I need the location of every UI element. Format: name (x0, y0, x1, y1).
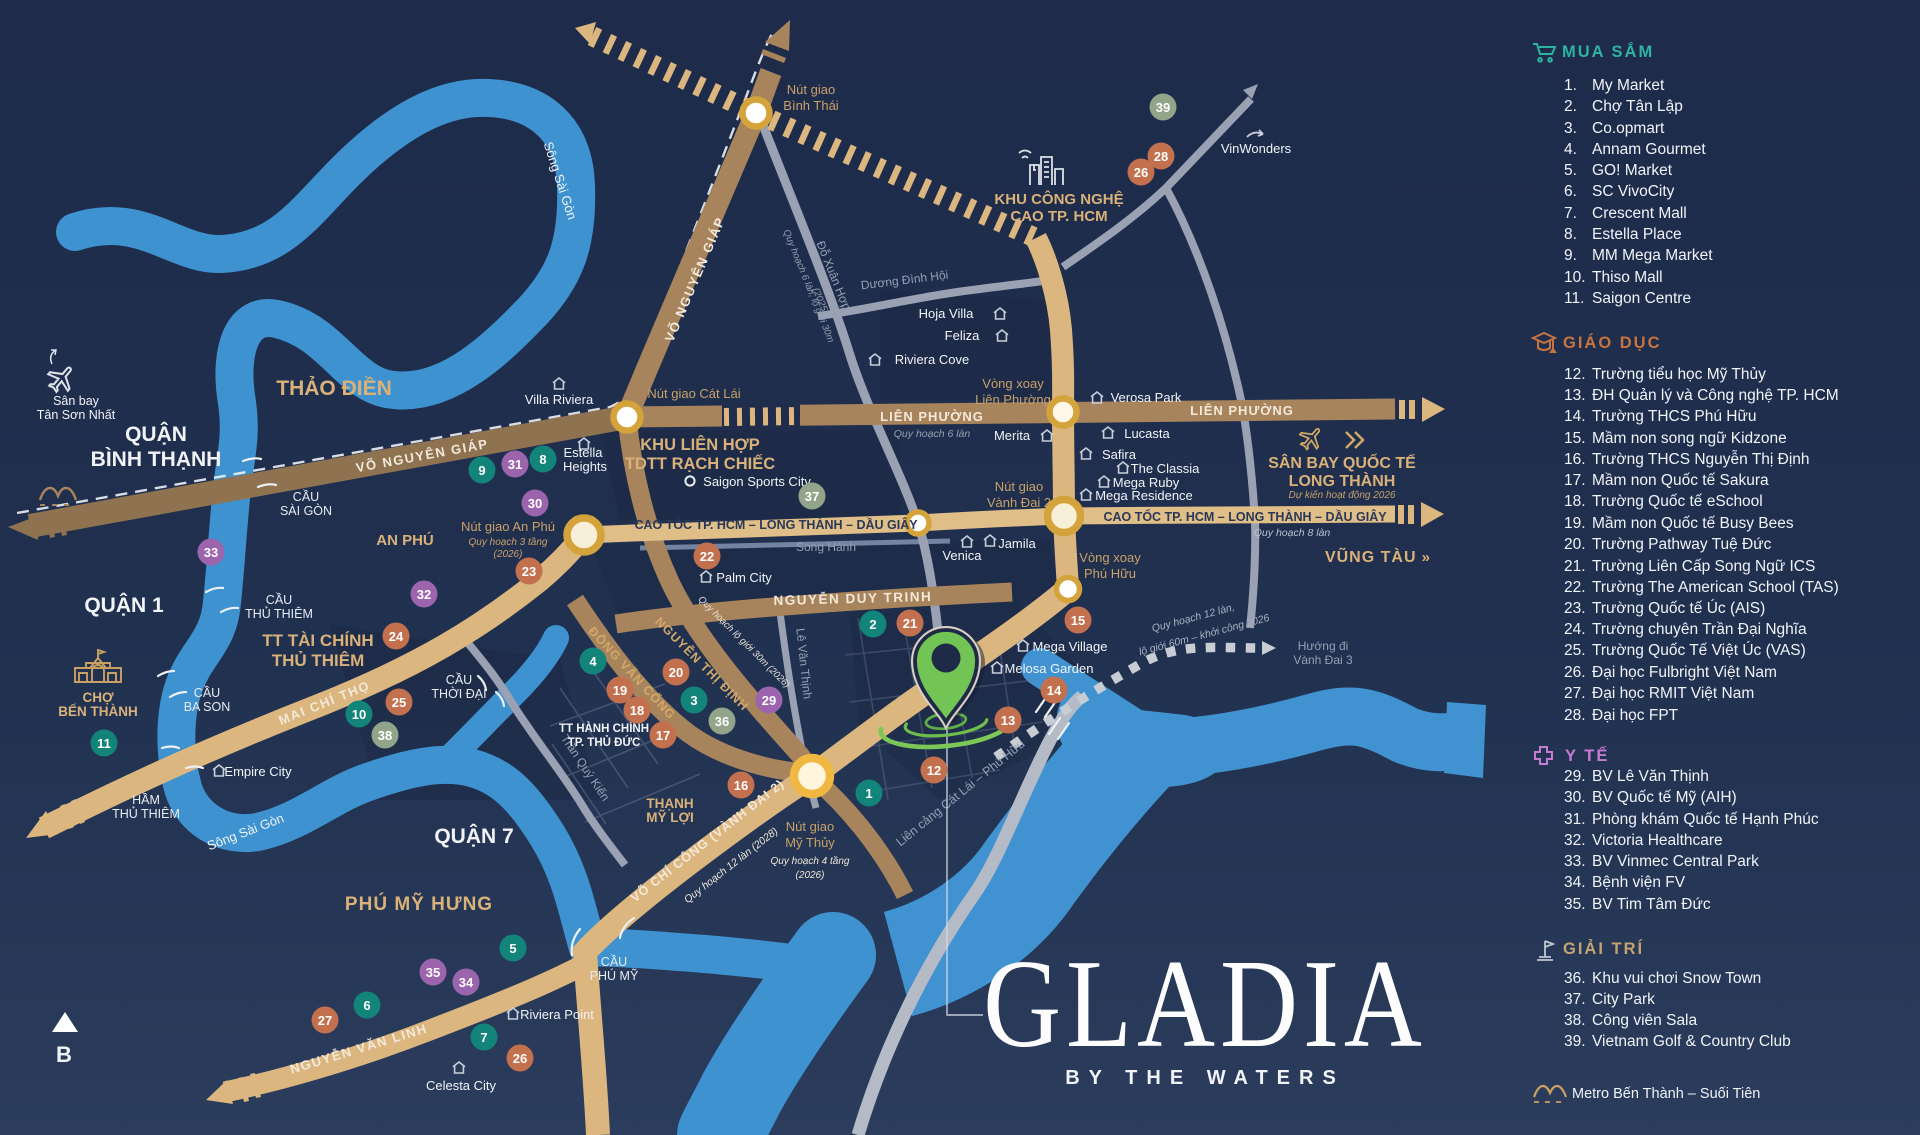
svg-text:Phú Hữu: Phú Hữu (1084, 566, 1136, 581)
svg-text:BẾN THÀNH: BẾN THÀNH (58, 704, 138, 719)
svg-text:SÂN BAY QUỐC TẾ: SÂN BAY QUỐC TẾ (1268, 452, 1416, 472)
svg-text:Trường THCS Phú Hữu: Trường THCS Phú Hữu (1592, 408, 1756, 425)
svg-text:28.: 28. (1564, 707, 1586, 724)
svg-text:Quy hoạch 6 làn: Quy hoạch 6 làn (894, 428, 971, 440)
svg-text:Melosa Garden: Melosa Garden (1005, 661, 1094, 676)
svg-text:Nút giao: Nút giao (995, 479, 1043, 494)
svg-text:6: 6 (363, 998, 370, 1013)
svg-text:CAO TP. HCM: CAO TP. HCM (1010, 208, 1107, 225)
svg-text:My Market: My Market (1592, 77, 1665, 94)
svg-text:10.: 10. (1564, 269, 1586, 286)
svg-text:Riviera Cove: Riviera Cove (895, 352, 969, 367)
svg-text:PHÚ MỸ: PHÚ MỸ (590, 968, 639, 983)
svg-text:22.: 22. (1564, 579, 1586, 596)
svg-text:Y TẾ: Y TẾ (1565, 746, 1609, 765)
svg-text:Đại học Fulbright Việt Nam: Đại học Fulbright Việt Nam (1592, 664, 1777, 681)
svg-text:23.: 23. (1564, 600, 1586, 617)
svg-text:MỸ LỢI: MỸ LỢI (646, 810, 694, 825)
svg-text:21: 21 (903, 616, 917, 631)
svg-text:Đại học RMIT Việt Nam: Đại học RMIT Việt Nam (1592, 685, 1754, 702)
svg-text:GO! Market: GO! Market (1592, 162, 1673, 179)
svg-text:3: 3 (690, 693, 697, 708)
svg-text:13: 13 (1001, 713, 1015, 728)
svg-text:City Park: City Park (1592, 991, 1655, 1008)
svg-text:19.: 19. (1564, 515, 1586, 532)
svg-text:TDTT RẠCH CHIẾC: TDTT RẠCH CHIẾC (625, 454, 775, 473)
svg-text:30: 30 (528, 496, 542, 511)
svg-text:Vòng xoay: Vòng xoay (1079, 550, 1141, 565)
svg-text:31: 31 (508, 457, 522, 472)
svg-text:CẦU: CẦU (601, 954, 627, 969)
svg-text:26.: 26. (1564, 664, 1586, 681)
svg-text:Vòng xoay: Vòng xoay (982, 376, 1044, 391)
svg-text:23: 23 (522, 564, 536, 579)
svg-text:Bệnh viện FV: Bệnh viện FV (1592, 874, 1686, 891)
svg-text:Celesta City: Celesta City (426, 1078, 497, 1093)
svg-text:3.: 3. (1564, 120, 1577, 137)
svg-text:Hướng đi: Hướng đi (1298, 639, 1349, 653)
svg-text:Chợ Tân Lập: Chợ Tân Lập (1592, 98, 1683, 115)
svg-text:18.: 18. (1564, 493, 1586, 510)
svg-text:SÀI GÒN: SÀI GÒN (280, 503, 332, 518)
svg-text:Dự kiến hoạt động 2026: Dự kiến hoạt động 2026 (1289, 489, 1396, 501)
svg-text:Saigon Centre: Saigon Centre (1592, 290, 1691, 307)
svg-text:CẦU: CẦU (293, 489, 319, 504)
svg-text:TT TÀI CHÍNH: TT TÀI CHÍNH (262, 631, 373, 650)
svg-text:17: 17 (656, 728, 670, 743)
svg-text:GIẢI TRÍ: GIẢI TRÍ (1563, 939, 1644, 958)
svg-text:Jamila: Jamila (998, 536, 1036, 551)
svg-text:CẦU: CẦU (446, 672, 472, 687)
svg-text:Trường Quốc tế Úc (AIS): Trường Quốc tế Úc (AIS) (1592, 600, 1765, 617)
svg-text:Annam Gourmet: Annam Gourmet (1592, 141, 1706, 158)
svg-text:Trường THCS Nguyễn Thị Định: Trường THCS Nguyễn Thị Định (1592, 451, 1810, 468)
svg-text:10: 10 (352, 707, 366, 722)
svg-text:LIÊN PHƯỜNG: LIÊN PHƯỜNG (1190, 403, 1294, 418)
svg-text:Mỹ Thủy: Mỹ Thủy (785, 835, 835, 850)
svg-text:Trường Liên Cấp Song Ngữ ICS: Trường Liên Cấp Song Ngữ ICS (1592, 558, 1815, 575)
svg-text:BÌNH THẠNH: BÌNH THẠNH (91, 448, 222, 471)
svg-text:12: 12 (927, 763, 941, 778)
svg-text:Công viên Sala: Công viên Sala (1592, 1012, 1698, 1029)
svg-text:33.: 33. (1564, 853, 1586, 870)
svg-text:29.: 29. (1564, 768, 1586, 785)
svg-text:17.: 17. (1564, 472, 1586, 489)
svg-text:Estella: Estella (563, 445, 603, 460)
svg-text:Crescent Mall: Crescent Mall (1592, 205, 1687, 222)
svg-text:30.: 30. (1564, 789, 1586, 806)
svg-text:Thiso Mall: Thiso Mall (1592, 269, 1663, 286)
svg-text:26: 26 (1134, 165, 1148, 180)
svg-text:Quy hoạch 8 làn: Quy hoạch 8 làn (1254, 527, 1331, 539)
svg-text:Heights: Heights (563, 459, 608, 474)
svg-text:BV Vinmec Central Park: BV Vinmec Central Park (1592, 853, 1759, 870)
svg-text:Saigon Sports City: Saigon Sports City (703, 474, 811, 489)
svg-text:THỦ THIÊM: THỦ THIÊM (272, 651, 365, 670)
svg-text:2.: 2. (1564, 98, 1577, 115)
svg-text:Quy hoạch 3 tầng: Quy hoạch 3 tầng (469, 536, 548, 548)
svg-text:GIÁO DỤC: GIÁO DỤC (1563, 333, 1662, 352)
svg-text:18: 18 (630, 703, 644, 718)
svg-text:1: 1 (865, 786, 872, 801)
svg-text:Feliza: Feliza (945, 328, 980, 343)
svg-text:THỜI ĐẠI: THỜI ĐẠI (431, 686, 486, 701)
svg-text:31.: 31. (1564, 811, 1586, 828)
svg-text:Tân Sơn Nhất: Tân Sơn Nhất (37, 408, 116, 422)
svg-text:Nút giao An Phú: Nút giao An Phú (461, 519, 555, 534)
svg-text:Phòng khám Quốc tế Hạnh Phúc: Phòng khám Quốc tế Hạnh Phúc (1592, 811, 1819, 828)
svg-text:Metro Bến Thành – Suối Tiên: Metro Bến Thành – Suối Tiên (1572, 1086, 1760, 1102)
svg-text:36: 36 (715, 714, 729, 729)
svg-text:11.: 11. (1564, 290, 1584, 307)
svg-text:2: 2 (869, 617, 876, 632)
svg-text:CHỢ: CHỢ (82, 690, 113, 705)
svg-text:5: 5 (509, 941, 516, 956)
svg-text:Mầm non song ngữ Kidzone: Mầm non song ngữ Kidzone (1592, 430, 1787, 447)
svg-text:QUẬN: QUẬN (125, 422, 187, 446)
svg-text:25.: 25. (1564, 642, 1586, 659)
svg-text:THẢO ĐIỀN: THẢO ĐIỀN (276, 377, 392, 400)
svg-text:Quy hoạch 4 tầng: Quy hoạch 4 tầng (771, 855, 850, 867)
svg-text:13.: 13. (1564, 387, 1586, 404)
svg-text:36.: 36. (1564, 970, 1586, 987)
svg-text:6.: 6. (1564, 183, 1577, 200)
svg-text:Song Hành: Song Hành (796, 540, 856, 554)
svg-text:KHU LIÊN HỢP: KHU LIÊN HỢP (640, 435, 760, 454)
svg-text:BV Quốc tế Mỹ (AIH): BV Quốc tế Mỹ (AIH) (1592, 789, 1737, 806)
svg-text:Khu vui chơi Snow Town: Khu vui chơi Snow Town (1592, 970, 1761, 987)
svg-text:(2026): (2026) (494, 549, 523, 560)
svg-text:B: B (56, 1042, 72, 1067)
svg-text:CAO TỐC TP. HCM – LONG THÀNH –: CAO TỐC TP. HCM – LONG THÀNH – DẦU GIÂY (634, 517, 918, 532)
svg-text:CẦU: CẦU (266, 592, 292, 607)
svg-text:Trường The American School (TA: Trường The American School (TAS) (1592, 579, 1839, 596)
svg-text:Empire City: Empire City (224, 764, 292, 779)
svg-text:Trường Pathway Tuệ Đức: Trường Pathway Tuệ Đức (1592, 536, 1772, 553)
svg-text:34.: 34. (1564, 874, 1586, 891)
svg-text:Co.opmart: Co.opmart (1592, 120, 1665, 137)
svg-text:37.: 37. (1564, 991, 1586, 1008)
svg-text:32.: 32. (1564, 832, 1586, 849)
svg-text:14.: 14. (1564, 408, 1586, 425)
svg-text:33: 33 (204, 545, 218, 560)
svg-text:Mega Village: Mega Village (1033, 639, 1108, 654)
svg-text:8: 8 (539, 452, 546, 467)
svg-text:Lucasta: Lucasta (1124, 426, 1170, 441)
svg-text:LONG THÀNH: LONG THÀNH (1289, 471, 1396, 490)
svg-text:22: 22 (700, 549, 714, 564)
svg-text:TP. THỦ ĐỨC: TP. THỦ ĐỨC (568, 736, 641, 749)
svg-text:9.: 9. (1564, 247, 1577, 264)
svg-text:39.: 39. (1564, 1033, 1586, 1050)
svg-text:BY THE WATERS: BY THE WATERS (1065, 1067, 1345, 1089)
svg-text:QUẬN 7: QUẬN 7 (434, 824, 513, 848)
svg-text:28: 28 (1154, 149, 1168, 164)
svg-text:Palm City: Palm City (716, 570, 772, 585)
svg-text:Nút giao Cát Lái: Nút giao Cát Lái (647, 386, 740, 401)
svg-text:4.: 4. (1564, 141, 1577, 158)
svg-text:TT HÀNH CHÍNH: TT HÀNH CHÍNH (559, 722, 649, 735)
svg-text:ĐH Quản lý và Công nghệ TP. HC: ĐH Quản lý và Công nghệ TP. HCM (1592, 387, 1839, 404)
svg-text:15: 15 (1071, 613, 1085, 628)
svg-text:The Classia: The Classia (1131, 461, 1200, 476)
svg-text:Sân bay: Sân bay (53, 394, 100, 408)
svg-text:PHÚ MỸ HƯNG: PHÚ MỸ HƯNG (345, 893, 493, 915)
svg-text:12.: 12. (1564, 366, 1586, 383)
svg-text:19: 19 (613, 683, 627, 698)
svg-text:Trường Quốc Tế Việt Úc (VAS): Trường Quốc Tế Việt Úc (VAS) (1592, 642, 1806, 659)
svg-text:24: 24 (389, 629, 404, 644)
svg-text:5.: 5. (1564, 162, 1577, 179)
svg-text:Villa Riviera: Villa Riviera (525, 392, 594, 407)
svg-text:BV Tim Tâm Đức: BV Tim Tâm Đức (1592, 896, 1711, 913)
svg-text:GLADIA: GLADIA (983, 934, 1427, 1074)
svg-text:KHU CÔNG NGHỆ: KHU CÔNG NGHỆ (994, 190, 1123, 208)
svg-text:Mầm non Quốc tế Busy Bees: Mầm non Quốc tế Busy Bees (1592, 515, 1794, 532)
svg-text:26: 26 (513, 1051, 527, 1066)
svg-text:15.: 15. (1564, 430, 1586, 447)
svg-text:(2026): (2026) (796, 870, 825, 881)
svg-text:Estella Place: Estella Place (1592, 226, 1682, 243)
svg-text:VinWonders: VinWonders (1221, 141, 1292, 156)
svg-text:11: 11 (97, 736, 111, 751)
svg-text:Victoria Healthcare: Victoria Healthcare (1592, 832, 1723, 849)
svg-text:38.: 38. (1564, 1012, 1586, 1029)
svg-text:Mầm non Quốc tế Sakura: Mầm non Quốc tế Sakura (1592, 472, 1769, 489)
svg-text:SC VivoCity: SC VivoCity (1592, 183, 1675, 200)
svg-text:Vietnam Golf & Country Club: Vietnam Golf & Country Club (1592, 1033, 1791, 1050)
svg-text:37: 37 (805, 489, 819, 504)
svg-text:Vành Đai 3: Vành Đai 3 (1293, 653, 1353, 667)
svg-text:THỦ THIÊM: THỦ THIÊM (245, 606, 313, 621)
svg-text:14: 14 (1047, 683, 1062, 698)
svg-text:Vành Đai 2: Vành Đai 2 (987, 495, 1051, 510)
svg-text:29: 29 (762, 693, 776, 708)
svg-text:Liên Phường: Liên Phường (975, 392, 1051, 407)
svg-text:9: 9 (478, 463, 485, 478)
svg-text:35: 35 (426, 965, 440, 980)
svg-text:Verosa Park: Verosa Park (1111, 390, 1182, 405)
svg-text:Venica: Venica (942, 548, 982, 563)
svg-text:7.: 7. (1564, 205, 1577, 222)
svg-text:Nút giao: Nút giao (787, 82, 835, 97)
svg-text:MM Mega Market: MM Mega Market (1592, 247, 1713, 264)
svg-text:35.: 35. (1564, 896, 1586, 913)
svg-text:Hoja Villa: Hoja Villa (919, 306, 974, 321)
svg-text:CAO TỐC TP. HCM – LONG THÀNH –: CAO TỐC TP. HCM – LONG THÀNH – DẦU GIÂY (1103, 509, 1387, 524)
svg-text:BA SON: BA SON (184, 700, 231, 714)
svg-text:BV Lê Văn Thịnh: BV Lê Văn Thịnh (1592, 768, 1709, 785)
svg-text:20: 20 (669, 665, 683, 680)
svg-text:VŨNG TÀU »: VŨNG TÀU » (1325, 546, 1431, 566)
svg-text:16: 16 (734, 778, 748, 793)
svg-text:THỦ THIÊM: THỦ THIÊM (112, 806, 180, 821)
svg-text:HẦM: HẦM (132, 792, 160, 807)
svg-text:Mega Residence: Mega Residence (1095, 488, 1193, 503)
svg-text:38: 38 (378, 728, 392, 743)
svg-text:32: 32 (417, 587, 431, 602)
svg-text:Merita: Merita (994, 428, 1031, 443)
svg-text:CẦU: CẦU (194, 685, 220, 700)
svg-text:THẠNH: THẠNH (646, 796, 693, 811)
svg-text:Trường chuyên Trần Đại Nghĩa: Trường chuyên Trần Đại Nghĩa (1592, 621, 1807, 638)
svg-text:27.: 27. (1564, 685, 1586, 702)
svg-text:27: 27 (318, 1013, 332, 1028)
svg-text:Nút giao: Nút giao (786, 819, 834, 834)
svg-text:24.: 24. (1564, 621, 1586, 638)
svg-text:20.: 20. (1564, 536, 1586, 553)
svg-text:1.: 1. (1564, 77, 1577, 94)
svg-text:MUA SẮM: MUA SẮM (1562, 42, 1654, 61)
svg-text:Riviera Point: Riviera Point (520, 1007, 594, 1022)
svg-text:8.: 8. (1564, 226, 1577, 243)
svg-text:39: 39 (1156, 100, 1170, 115)
svg-text:4: 4 (589, 654, 597, 669)
svg-text:AN PHÚ: AN PHÚ (376, 531, 434, 549)
svg-text:Trường tiểu học Mỹ Thủy: Trường tiểu học Mỹ Thủy (1592, 366, 1766, 383)
svg-text:Trường Quốc tế eSchool: Trường Quốc tế eSchool (1592, 493, 1763, 510)
svg-text:Đại học FPT: Đại học FPT (1592, 707, 1679, 724)
svg-text:QUẬN 1: QUẬN 1 (84, 593, 164, 617)
svg-text:34: 34 (459, 975, 474, 990)
svg-text:Bình Thái: Bình Thái (783, 98, 839, 113)
svg-text:LIÊN PHƯỜNG: LIÊN PHƯỜNG (880, 409, 984, 424)
svg-text:25: 25 (392, 695, 406, 710)
svg-text:Safira: Safira (1102, 447, 1137, 462)
svg-text:7: 7 (480, 1030, 487, 1045)
svg-text:21.: 21. (1564, 558, 1586, 575)
svg-text:16.: 16. (1564, 451, 1586, 468)
